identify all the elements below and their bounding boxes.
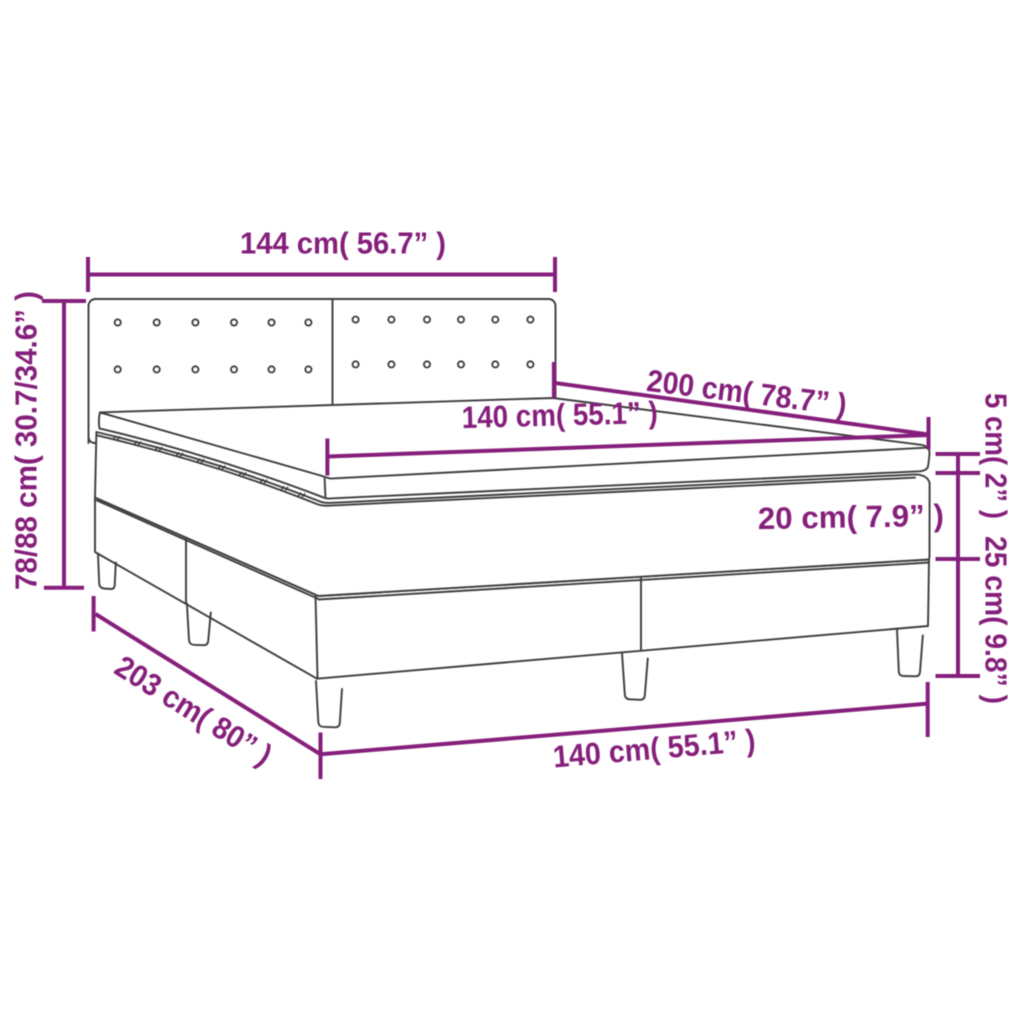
svg-text:78/88 cm( 30.7/34.6” ): 78/88 cm( 30.7/34.6” ) <box>9 291 44 590</box>
svg-text:140 cm( 55.1” ): 140 cm( 55.1” ) <box>461 395 658 435</box>
svg-text:144 cm( 56.7” ): 144 cm( 56.7” ) <box>240 226 446 261</box>
svg-text:5 cm( 2” ): 5 cm( 2” ) <box>979 393 1014 519</box>
svg-text:20 cm( 7.9” ): 20 cm( 7.9” ) <box>758 498 945 536</box>
svg-text:25 cm( 9.8” ): 25 cm( 9.8” ) <box>979 536 1014 704</box>
